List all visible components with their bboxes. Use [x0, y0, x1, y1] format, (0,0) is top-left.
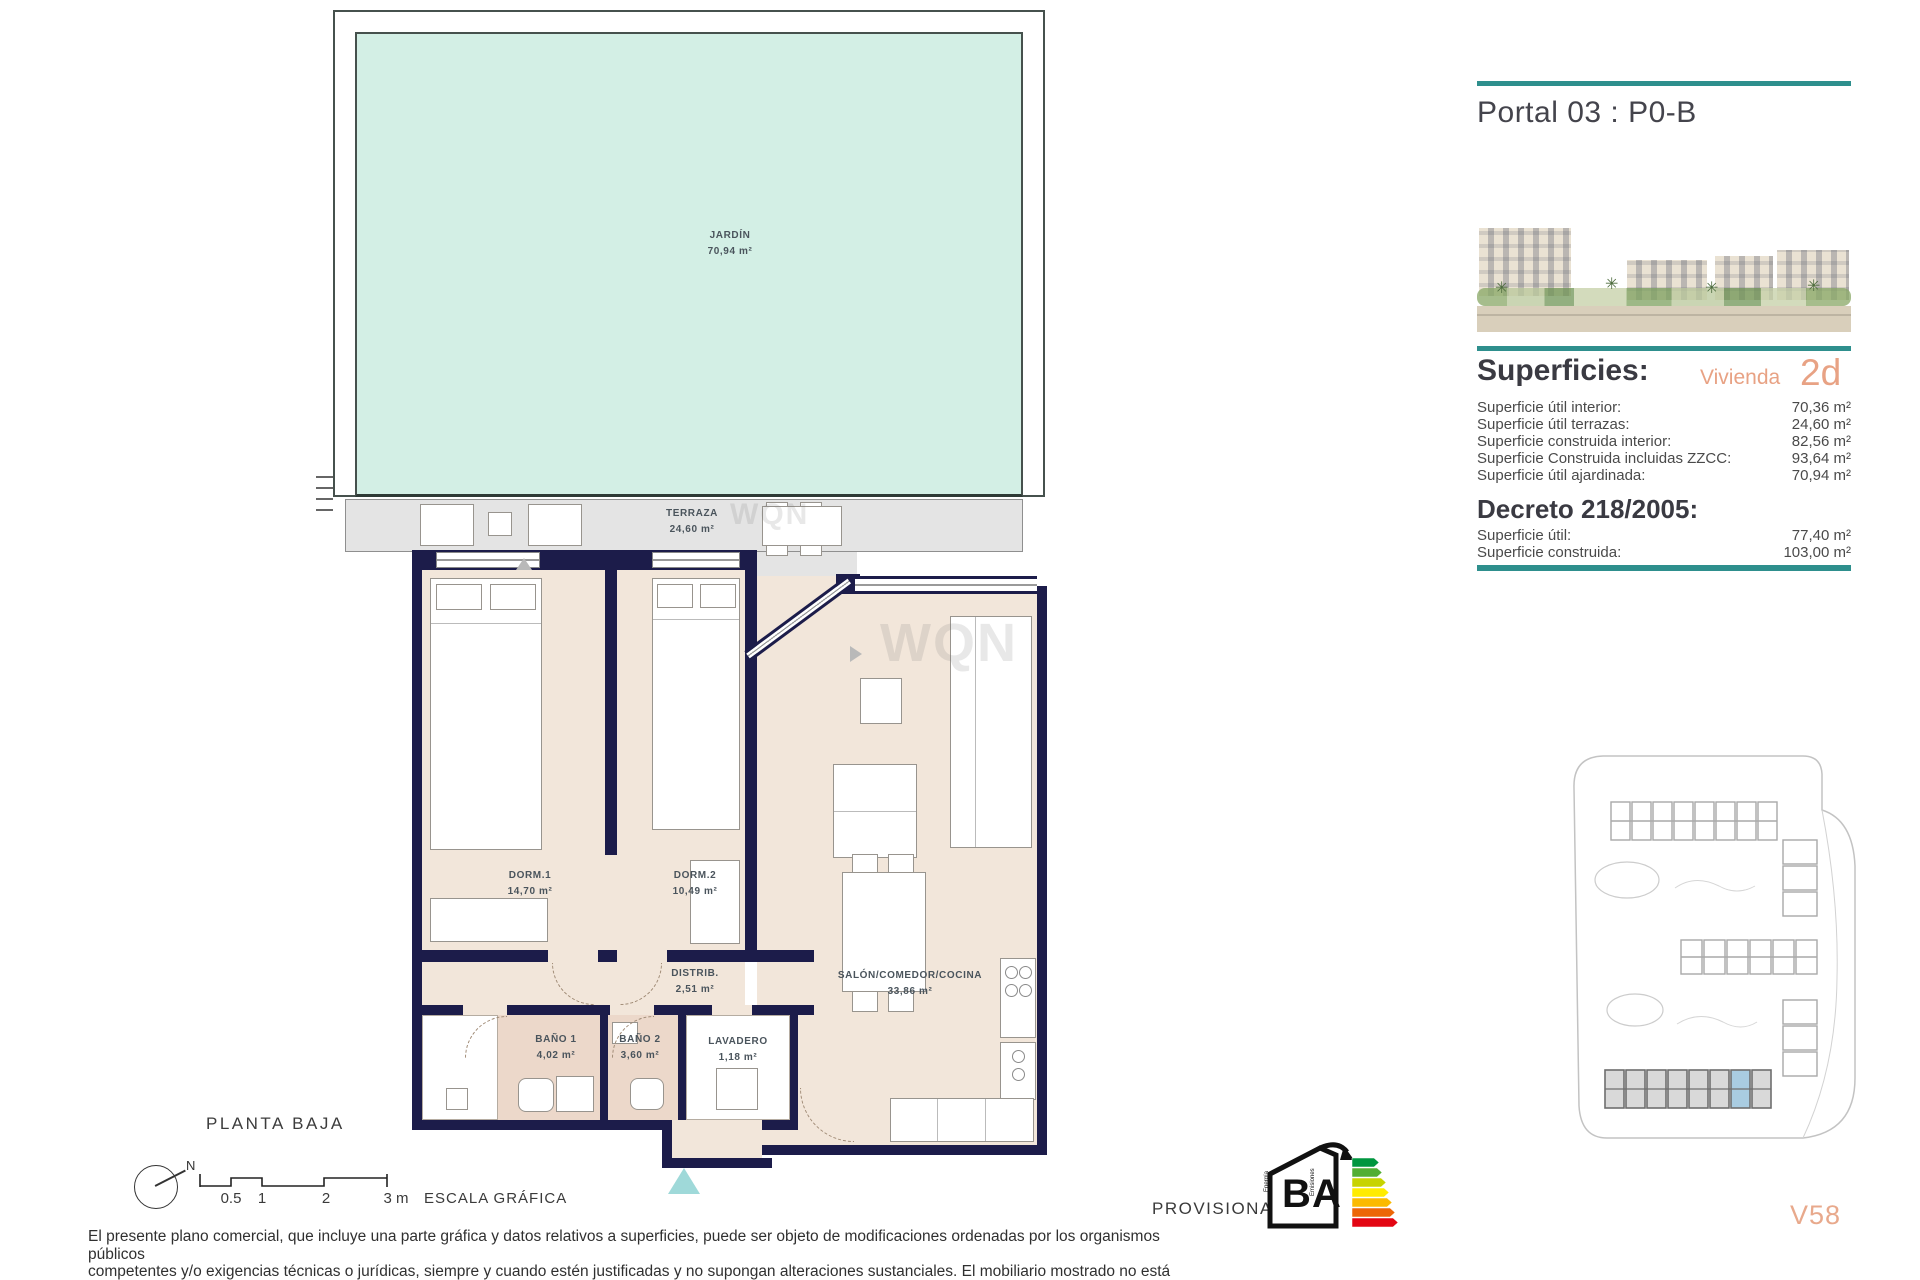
palm-tree-icon: ✳: [1495, 278, 1508, 298]
wall: [790, 1015, 798, 1120]
road-line: [1477, 314, 1851, 316]
scale-caption: ESCALA GRÁFICA: [424, 1190, 567, 1207]
hob-burner: [1005, 966, 1018, 979]
site-plan-minimap: [1565, 748, 1860, 1148]
vivienda-label: Vivienda: [1700, 366, 1780, 390]
wall: [605, 570, 617, 855]
building-render: ✳ ✳ ✳ ✳: [1477, 186, 1851, 332]
floor-label: PLANTA BAJA: [206, 1114, 345, 1134]
sink-bowl: [1012, 1068, 1025, 1081]
surface-label: Superficie útil interior:: [1477, 399, 1621, 416]
wall: [762, 1120, 798, 1130]
surface-value: 77,40 m²: [1792, 527, 1851, 544]
surface-label: Superficie útil:: [1477, 527, 1571, 544]
door-opening: [617, 950, 667, 962]
ground: [1477, 306, 1851, 332]
scale-tick: 1: [258, 1190, 266, 1207]
room-label-terraza: TERRAZA 24,60 m²: [666, 506, 718, 538]
door-opening: [548, 950, 598, 962]
surface-row: Superficie Construida incluidas ZZCC: 93…: [1477, 450, 1851, 467]
toilet: [518, 1078, 554, 1112]
building: [1479, 228, 1571, 296]
wall: [412, 550, 422, 1130]
pillow: [700, 584, 736, 608]
room-label-dorm1: DORM.114,70 m²: [508, 868, 553, 900]
portal-title: Portal 03 : P0-B: [1477, 96, 1697, 130]
bed-dorm2: [652, 578, 740, 830]
surface-value: 103,00 m²: [1783, 544, 1851, 561]
wall: [412, 950, 814, 962]
room-label-jardin: JARDÍN 70,94 m²: [708, 228, 753, 260]
surface-label: Superficie construida:: [1477, 544, 1621, 561]
watermark: WQN: [880, 612, 1018, 674]
window: [652, 552, 740, 568]
room-label-bano1: BAÑO 14,02 m²: [535, 1032, 576, 1064]
hob-burner: [1019, 984, 1032, 997]
floor-plan: JARDÍN 70,94 m² TERRAZA 24,60 m²: [0, 0, 1200, 1280]
door-opening: [712, 1005, 752, 1015]
kitchen-counter: [890, 1098, 1034, 1142]
coffee-table: [833, 764, 917, 858]
pillow: [490, 584, 536, 610]
surface-value: 24,60 m²: [1792, 416, 1851, 433]
surface-row: Superficie construida: 103,00 m²: [1477, 544, 1851, 561]
pillow: [436, 584, 482, 610]
wall: [762, 1145, 1047, 1155]
watermark: WQN: [730, 498, 809, 532]
surface-label: Superficie construida interior:: [1477, 433, 1671, 450]
palm-tree-icon: ✳: [1705, 278, 1718, 298]
scale-tick: 0.5: [221, 1190, 242, 1207]
energy-letter-a: A: [1312, 1172, 1341, 1217]
washbasin: [446, 1088, 468, 1110]
wall: [600, 1015, 608, 1120]
toilet: [630, 1078, 664, 1110]
garden-area: [355, 32, 1023, 497]
entry-triangle: [668, 1168, 700, 1194]
wall: [745, 570, 757, 950]
divider-rule: [1477, 81, 1851, 86]
door-opening: [463, 1005, 507, 1015]
vestibule-floor: [672, 1120, 762, 1158]
surface-row: Superficie construida interior: 82,56 m²: [1477, 433, 1851, 450]
surface-row: Superficie útil ajardinada: 70,94 m²: [1477, 467, 1851, 484]
terrace-side-table: [488, 512, 512, 536]
wall: [1037, 586, 1047, 1155]
armchair: [860, 678, 902, 724]
scale-tick: 2: [322, 1190, 330, 1207]
disclaimer-line: competentes y/o exigencias técnicas o ju…: [88, 1263, 1208, 1280]
room-label-bano2: BAÑO 23,60 m²: [619, 1032, 660, 1064]
surface-value: 70,36 m²: [1792, 399, 1851, 416]
surface-label: Superficie útil ajardinada:: [1477, 467, 1645, 484]
divider-rule: [1477, 565, 1851, 571]
palm-tree-icon: ✳: [1605, 274, 1618, 294]
vegetation: [1477, 288, 1851, 306]
surface-row: Superficie útil interior: 70,36 m²: [1477, 399, 1851, 416]
window-band: [855, 576, 1037, 594]
hob-burner: [1005, 984, 1018, 997]
washing-machine: [716, 1068, 758, 1110]
surface-row: Superficie útil terrazas: 24,60 m²: [1477, 416, 1851, 433]
disclaimer-line: El presente plano comercial, que incluye…: [88, 1228, 1208, 1263]
vivienda-code: 2d: [1800, 352, 1841, 394]
wall: [662, 1158, 772, 1168]
terrace-armchair: [420, 504, 474, 546]
energy-letter-b: B: [1282, 1172, 1311, 1217]
surface-label: Superficie Construida incluidas ZZCC:: [1477, 450, 1731, 467]
room-label-dorm2: DORM.210,49 m²: [673, 868, 718, 900]
wall-marker: [516, 558, 532, 570]
scale-tick: 3 m: [383, 1190, 408, 1207]
wall-marker: [850, 646, 862, 662]
disclaimer-text: El presente plano comercial, que incluye…: [88, 1228, 1208, 1280]
room-label-lavadero: LAVADERO1,18 m²: [708, 1034, 767, 1066]
unit-code: V58: [1790, 1200, 1841, 1231]
energy-rating-badge: B A Energía Emisiones: [1262, 1134, 1400, 1236]
compass-north-label: N: [186, 1158, 195, 1173]
wall: [678, 1015, 686, 1120]
superficies-heading: Superficies:: [1477, 354, 1649, 388]
decreto-heading: Decreto 218/2005:: [1477, 494, 1698, 525]
door-opening: [610, 1005, 654, 1015]
surface-value: 82,56 m²: [1792, 433, 1851, 450]
plan-sheet: JARDÍN 70,94 m² TERRAZA 24,60 m²: [0, 0, 1920, 1280]
energy-energia-label: Energía: [1264, 1171, 1270, 1192]
garden-steps: [316, 476, 333, 522]
shower: [556, 1076, 594, 1112]
sink-bowl: [1012, 1050, 1025, 1063]
surface-label: Superficie útil terrazas:: [1477, 416, 1630, 433]
dresser-dorm1: [430, 898, 548, 942]
wall: [412, 1120, 672, 1130]
surface-value: 70,94 m²: [1792, 467, 1851, 484]
hob-burner: [1019, 966, 1032, 979]
room-label-salon: SALÓN/COMEDOR/COCINA33,86 m²: [838, 968, 982, 1000]
surface-value: 93,64 m²: [1792, 450, 1851, 467]
room-label-distrib: DISTRIB.2,51 m²: [671, 966, 719, 998]
compass-icon: [134, 1165, 178, 1209]
bed-dorm1: [430, 578, 542, 850]
energy-emisiones-label: Emisiones: [1310, 1168, 1316, 1196]
palm-tree-icon: ✳: [1807, 276, 1820, 296]
surface-row: Superficie útil: 77,40 m²: [1477, 527, 1851, 544]
pillow: [657, 584, 693, 608]
terrace-armchair: [528, 504, 582, 546]
divider-rule: [1477, 346, 1851, 351]
